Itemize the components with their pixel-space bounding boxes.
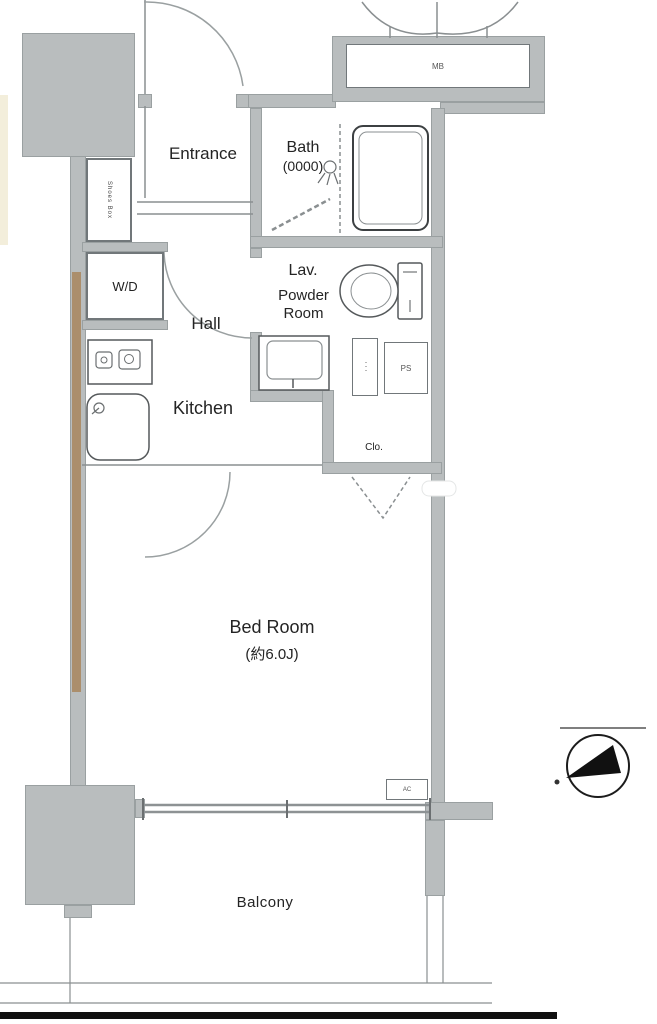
entrance-door-arc [144,2,243,86]
room-label-closet: Clo. [352,442,396,455]
washer-dryer-label: W/D [112,279,137,294]
floor-plan: Shoes Box W/D MB ･･･ PS AC Entrance Bath… [0,0,657,1024]
washer-dryer-box: W/D [86,252,164,320]
room-label-entrance: Entrance [148,143,258,164]
entrance-step-lines [137,202,253,214]
meter-box-label: MB [432,62,444,71]
pipe-space-label: PS [401,364,412,373]
room-label-bath-size: (0000) [258,158,348,176]
ac-box: AC [386,779,428,800]
room-label-lavatory: Lav. [262,261,344,281]
bathtub [353,126,428,230]
room-label-bedroom-size: (約6.0J) [162,646,382,665]
room-label-powder-1: Powder [256,287,351,306]
shoes-box: Shoes Box [86,158,132,242]
room-label-kitchen: Kitchen [158,397,248,420]
storage-strip-label: ･･･ [361,361,370,373]
room-label-bath: Bath [262,138,344,158]
pipe-space-box: PS [384,342,428,394]
bedroom-door-arc [145,472,230,557]
meter-box-scallops [362,2,518,38]
balcony-window [143,798,430,820]
bath-door-line [272,199,330,230]
closet-folding-door [352,477,410,518]
storage-strip-box: ･･･ [352,338,378,396]
compass-icon [555,728,647,797]
white-patch [422,481,456,496]
ac-label: AC [403,787,411,793]
stove [88,340,152,384]
room-label-powder-2: Room [256,305,351,324]
room-label-hall: Hall [176,313,236,334]
shoes-box-label: Shoes Box [106,181,112,219]
meter-box: MB [346,44,530,88]
washbasin [259,336,329,390]
toilet [340,263,422,319]
kitchen-sink [87,394,149,460]
room-label-balcony: Balcony [205,894,325,913]
room-label-bedroom: Bed Room [162,616,382,639]
